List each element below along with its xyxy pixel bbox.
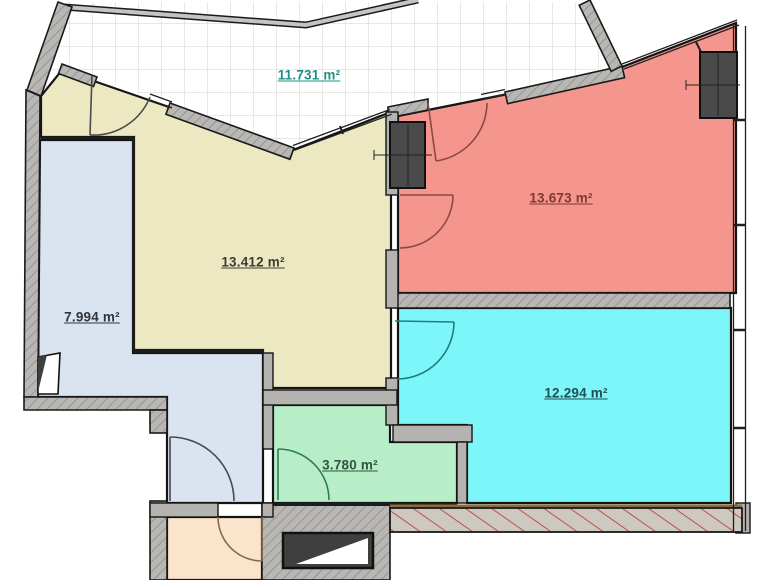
- floor-plan-page: 11.731 m² 13.673 m² 13.412 m² 7.994 m² 1…: [0, 0, 780, 580]
- room-yellow-area-label: 13.412 m²: [221, 255, 284, 270]
- duct-niche-bottom: [283, 533, 373, 568]
- room-red-area-label: 13.673 m²: [529, 191, 592, 206]
- wall-segment: [395, 293, 730, 308]
- floor-plan-canvas: [0, 0, 780, 580]
- lower-balcony-strip: [390, 506, 742, 532]
- wall-segment: [24, 90, 40, 397]
- terrace-area-label: 11.731 m²: [278, 68, 341, 83]
- wall-segment: [457, 442, 467, 503]
- wall-segment: [262, 503, 273, 517]
- room-peach-floor: [167, 517, 262, 580]
- niche-left-wall: [38, 353, 60, 394]
- lower-balcony-parapet: [390, 508, 742, 532]
- room-cyan-area-label: 12.294 m²: [544, 386, 607, 401]
- wall-segment: [150, 410, 167, 433]
- bath-area-label: 3.780 m²: [322, 458, 378, 473]
- hall-area-label: 7.994 m²: [64, 310, 120, 325]
- wall-segment: [386, 250, 398, 308]
- wall-segment: [150, 503, 218, 517]
- wall-segment: [393, 425, 472, 442]
- wall-segment: [24, 397, 167, 410]
- wall-segment: [263, 390, 397, 405]
